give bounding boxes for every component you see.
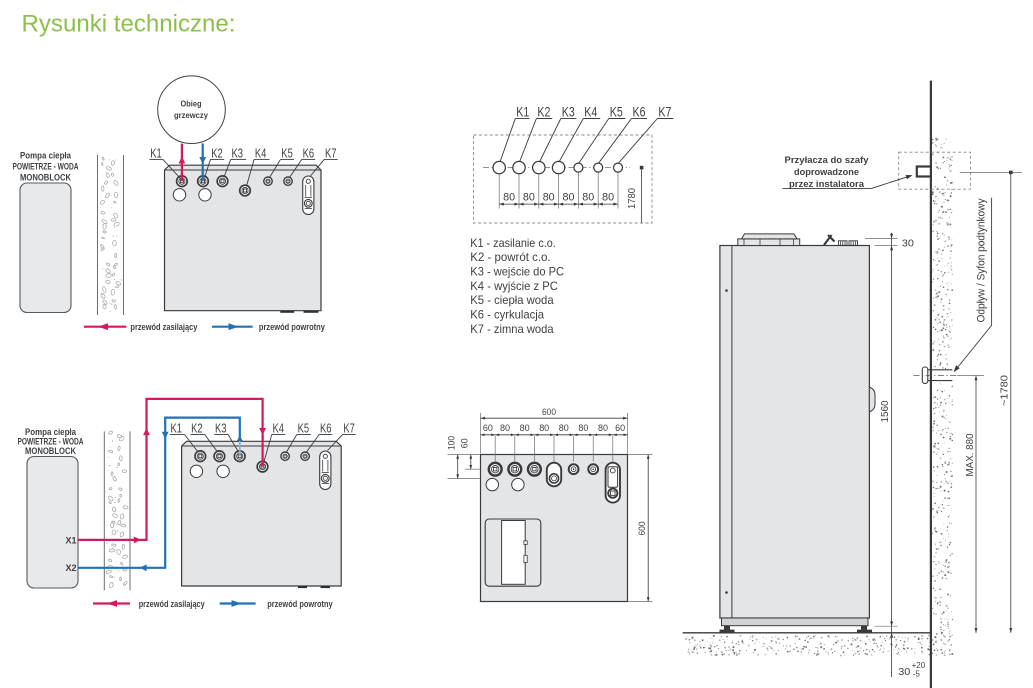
svg-text:przewód zasilający: przewód zasilający: [139, 599, 206, 610]
svg-text:1560: 1560: [879, 400, 891, 422]
svg-text:80: 80: [543, 191, 555, 203]
svg-text:K2: K2: [191, 422, 203, 436]
svg-text:Rysunki techniczne:: Rysunki techniczne:: [22, 11, 236, 38]
svg-text:~1780: ~1780: [999, 375, 1011, 406]
svg-text:K2 - powrót c.o.: K2 - powrót c.o.: [470, 251, 550, 264]
svg-text:POWIETRZE - WODA: POWIETRZE - WODA: [13, 162, 79, 172]
svg-text:30: 30: [902, 237, 914, 249]
svg-text:K3: K3: [562, 104, 575, 119]
svg-text:Pompa ciepła: Pompa ciepła: [25, 427, 77, 437]
svg-text:K1: K1: [150, 147, 162, 161]
svg-text:80: 80: [520, 423, 530, 433]
svg-text:30: 30: [898, 666, 910, 678]
svg-text:60: 60: [615, 423, 625, 433]
svg-text:600: 600: [542, 407, 556, 417]
svg-text:Odpływ / Syfon podtynkowy: Odpływ / Syfon podtynkowy: [975, 198, 987, 323]
svg-text:Obieg: Obieg: [181, 99, 202, 109]
svg-text:80: 80: [503, 191, 515, 203]
svg-text:K7: K7: [658, 104, 671, 119]
svg-text:80: 80: [523, 191, 535, 203]
svg-text:1780: 1780: [626, 188, 638, 209]
svg-text:-5: -5: [913, 669, 921, 678]
svg-text:K6: K6: [633, 104, 646, 119]
svg-text:K3: K3: [232, 147, 244, 161]
svg-text:K5: K5: [298, 422, 310, 436]
svg-text:60: 60: [483, 423, 493, 433]
svg-text:K3: K3: [215, 422, 227, 436]
svg-text:K5 - ciepła woda: K5 - ciepła woda: [470, 294, 554, 307]
svg-text:Pompa ciepła: Pompa ciepła: [20, 151, 72, 161]
svg-text:K3 - wejście do PC: K3 - wejście do PC: [470, 266, 564, 279]
svg-text:60: 60: [460, 438, 470, 448]
svg-text:80: 80: [582, 191, 594, 203]
svg-text:80: 80: [559, 423, 569, 433]
svg-text:K6: K6: [320, 422, 332, 436]
svg-text:80: 80: [598, 423, 608, 433]
svg-text:80: 80: [578, 423, 588, 433]
svg-text:MONOBLOCK: MONOBLOCK: [25, 446, 76, 456]
svg-text:X2: X2: [65, 563, 76, 573]
svg-text:K4: K4: [584, 104, 597, 119]
svg-text:K5: K5: [610, 104, 623, 119]
svg-text:MONOBLOCK: MONOBLOCK: [20, 173, 71, 183]
svg-text:przewód powrotny: przewód powrotny: [259, 322, 326, 333]
svg-text:Przyłacza do szafy: Przyłacza do szafy: [785, 155, 870, 166]
svg-text:MAX. 880: MAX. 880: [964, 433, 976, 476]
svg-text:100: 100: [446, 436, 456, 450]
svg-text:K4: K4: [255, 147, 267, 161]
svg-text:przewód zasilający: przewód zasilający: [130, 322, 198, 333]
svg-text:600: 600: [637, 522, 647, 536]
svg-text:grzewczy: grzewczy: [174, 110, 208, 120]
svg-text:K2: K2: [537, 104, 550, 119]
svg-text:K6 - cyrkulacja: K6 - cyrkulacja: [470, 309, 544, 322]
svg-text:X1: X1: [65, 535, 76, 545]
svg-text:K4 - wyjście z PC: K4 - wyjście z PC: [470, 280, 558, 293]
svg-text:K1 - zasilanie c.o.: K1 - zasilanie c.o.: [470, 237, 556, 250]
svg-text:80: 80: [563, 191, 575, 203]
svg-text:80: 80: [539, 423, 549, 433]
svg-text:K1: K1: [516, 104, 529, 119]
svg-text:K4: K4: [273, 422, 285, 436]
svg-text:K1: K1: [171, 422, 183, 436]
svg-text:K2: K2: [211, 147, 223, 161]
svg-text:80: 80: [500, 423, 510, 433]
svg-text:K6: K6: [303, 147, 315, 161]
svg-text:K7: K7: [325, 147, 337, 161]
svg-text:K7: K7: [343, 422, 355, 436]
svg-text:doprowadzone: doprowadzone: [794, 167, 859, 178]
svg-text:przewód powrotny: przewód powrotny: [267, 599, 333, 610]
svg-text:80: 80: [602, 191, 614, 203]
svg-text:K5: K5: [281, 147, 293, 161]
svg-text:K7 - zimna woda: K7 - zimna woda: [470, 323, 554, 336]
svg-text:POWIETRZE - WODA: POWIETRZE - WODA: [18, 437, 84, 447]
